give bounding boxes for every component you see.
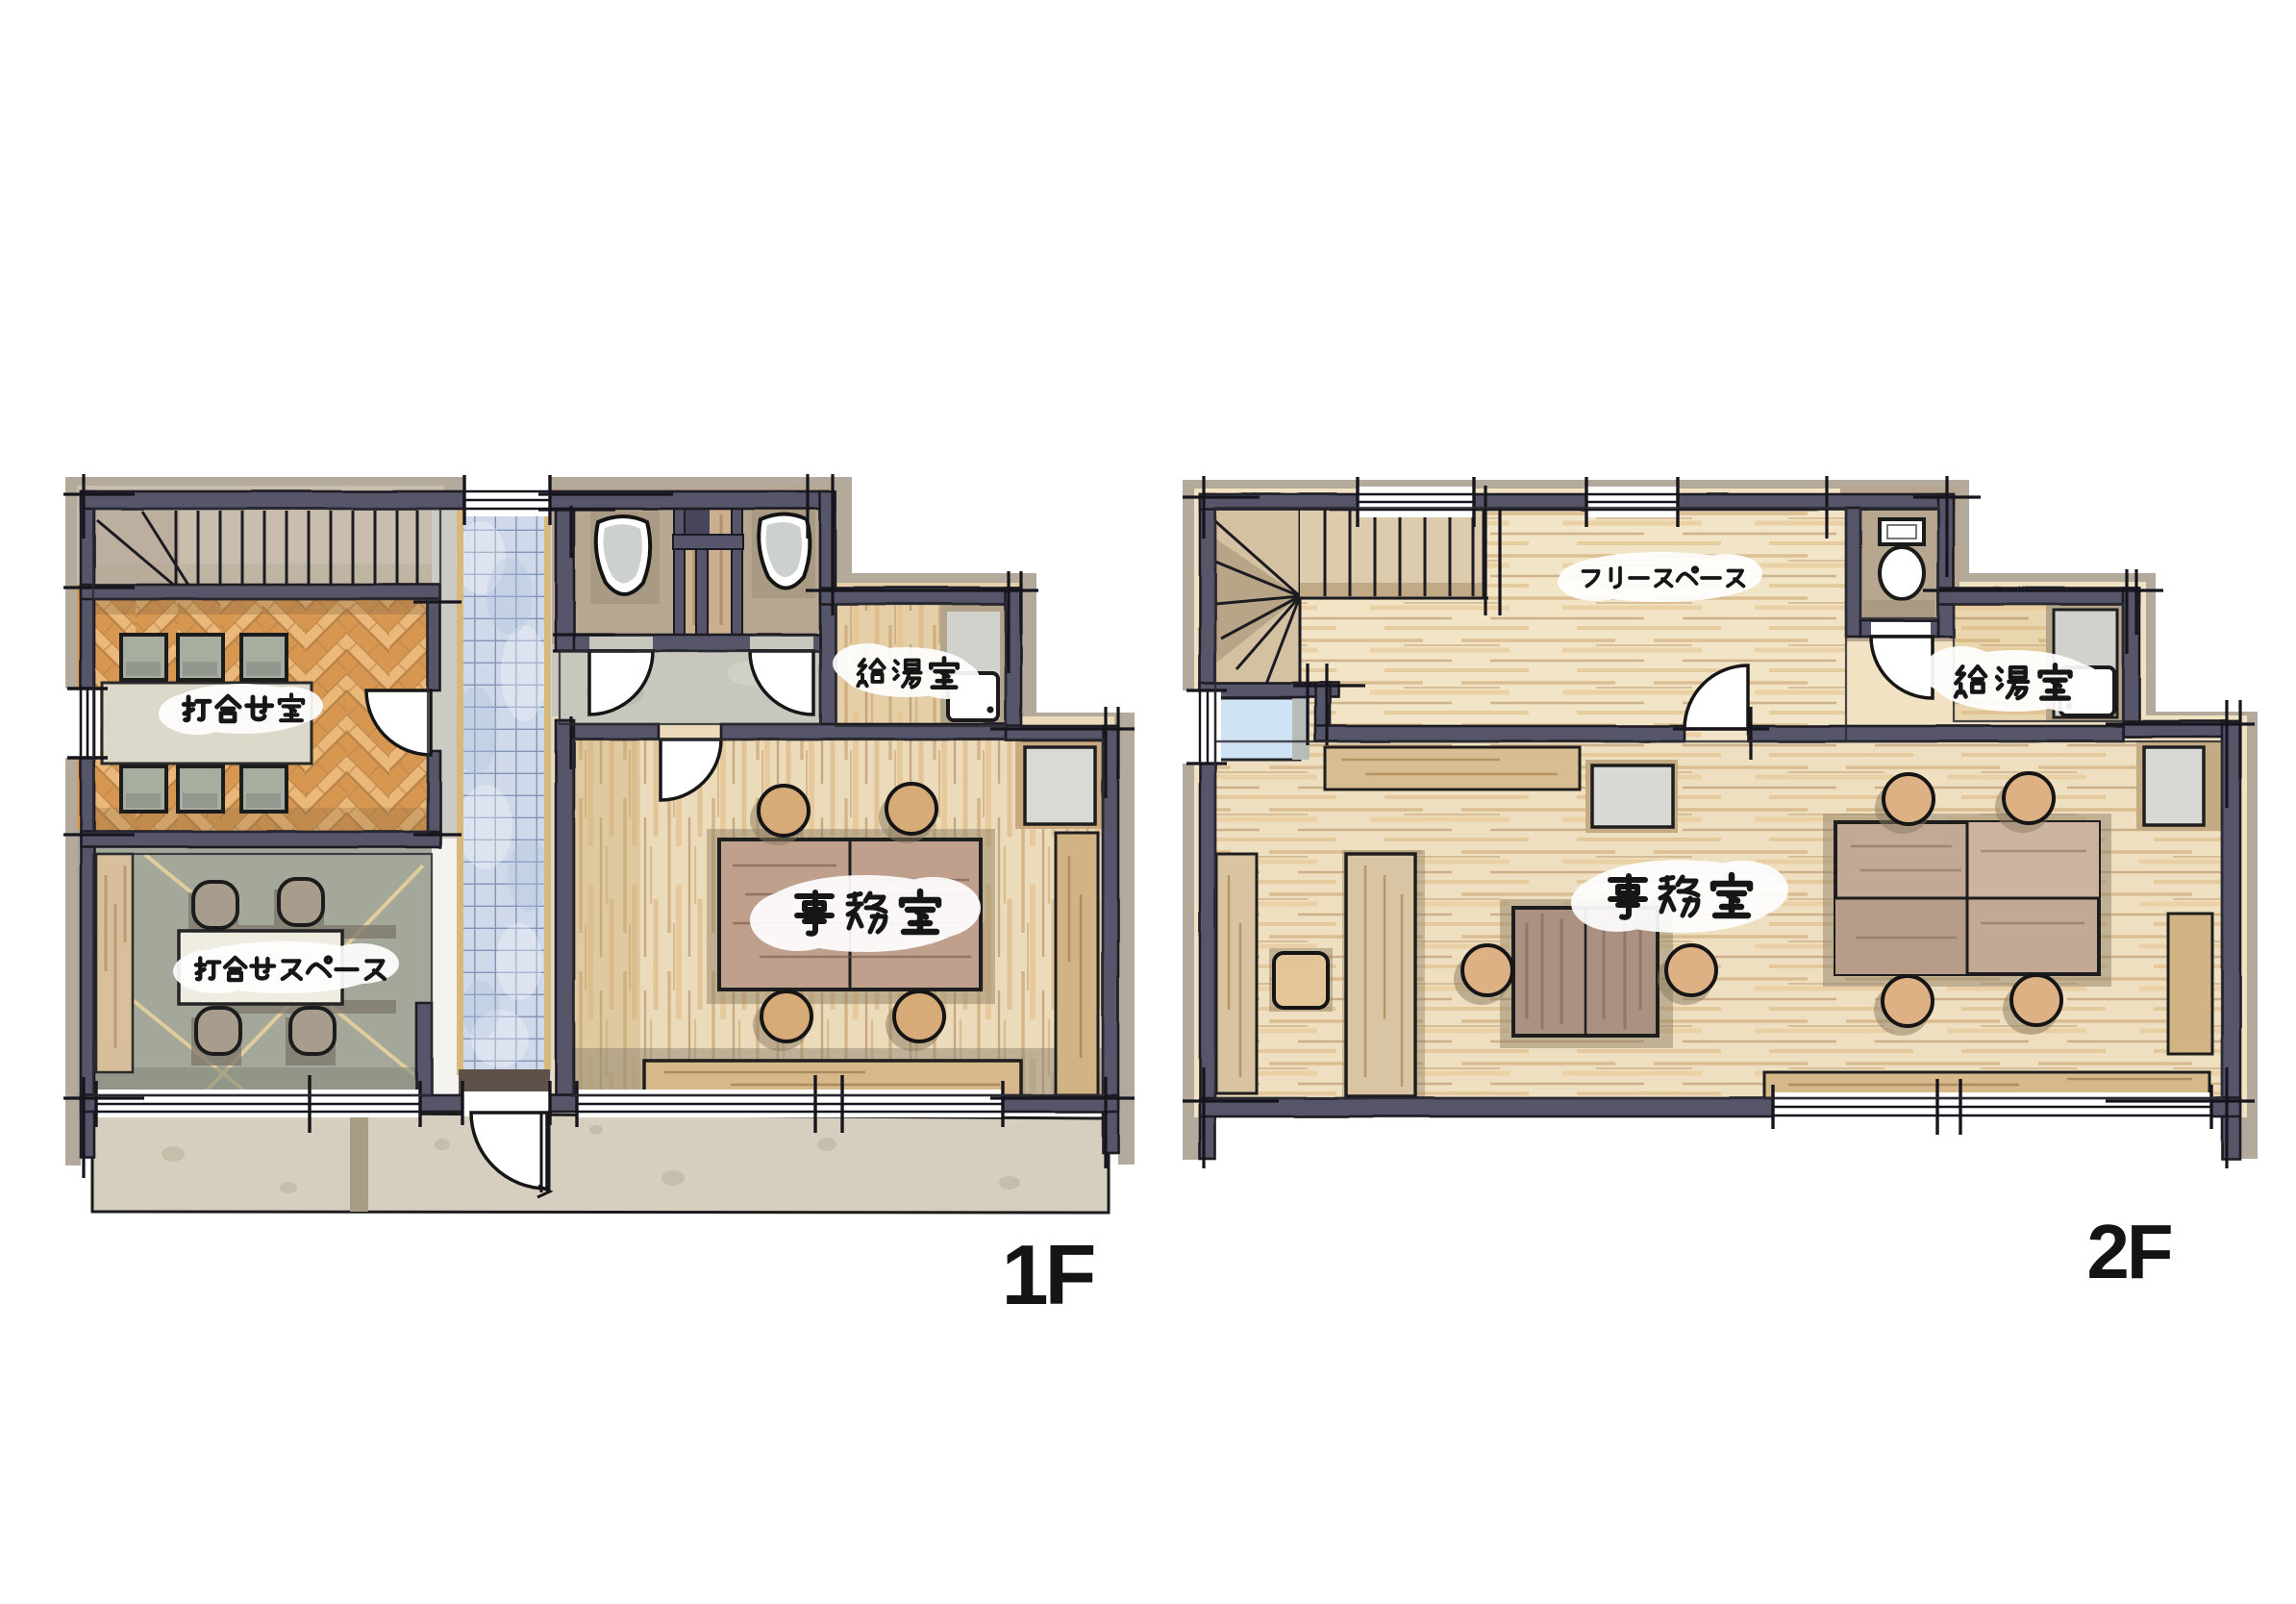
svg-text:1F: 1F bbox=[1002, 1227, 1094, 1322]
svg-text:2F: 2F bbox=[2086, 1209, 2170, 1294]
